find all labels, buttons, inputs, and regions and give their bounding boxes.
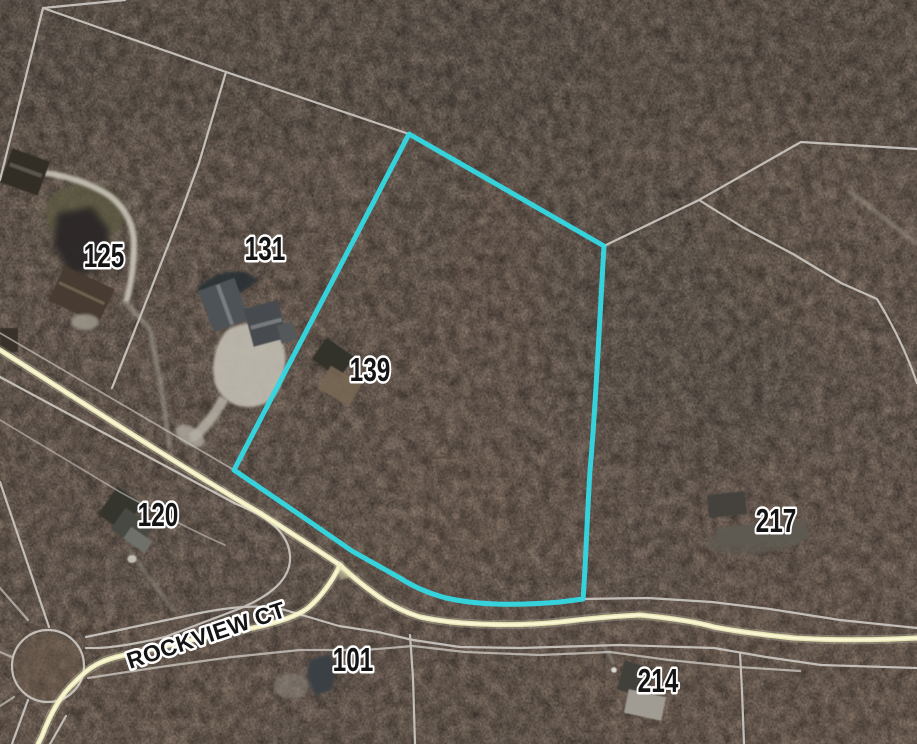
svg-text:120: 120 [138, 498, 179, 534]
svg-text:217: 217 [756, 504, 797, 540]
svg-text:101: 101 [333, 643, 374, 679]
svg-text:125: 125 [84, 239, 125, 275]
svg-text:139: 139 [350, 353, 391, 389]
svg-text:214: 214 [638, 664, 679, 700]
svg-text:131: 131 [245, 232, 286, 268]
